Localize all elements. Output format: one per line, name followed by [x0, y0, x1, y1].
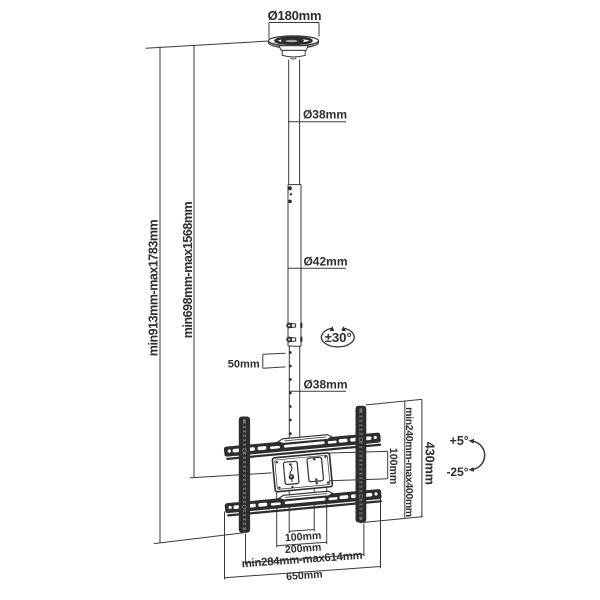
svg-text:-25°: -25° [446, 465, 468, 479]
svg-text:430mm: 430mm [423, 442, 437, 485]
svg-text:Ø38mm: Ø38mm [303, 378, 347, 392]
svg-text:100mm: 100mm [387, 448, 399, 485]
svg-text:+5°: +5° [450, 434, 469, 448]
svg-text:Ø180mm: Ø180mm [268, 8, 322, 23]
svg-text:±30°: ±30° [325, 330, 352, 345]
svg-text:min913mm-max1783mm: min913mm-max1783mm [147, 219, 161, 356]
svg-text:min240mm-max400mm: min240mm-max400mm [403, 407, 415, 517]
svg-text:Ø38mm: Ø38mm [303, 107, 347, 121]
svg-text:Ø42mm: Ø42mm [303, 255, 347, 269]
svg-text:50mm: 50mm [228, 358, 260, 370]
svg-text:min698mm-max1568mm: min698mm-max1568mm [181, 201, 195, 338]
